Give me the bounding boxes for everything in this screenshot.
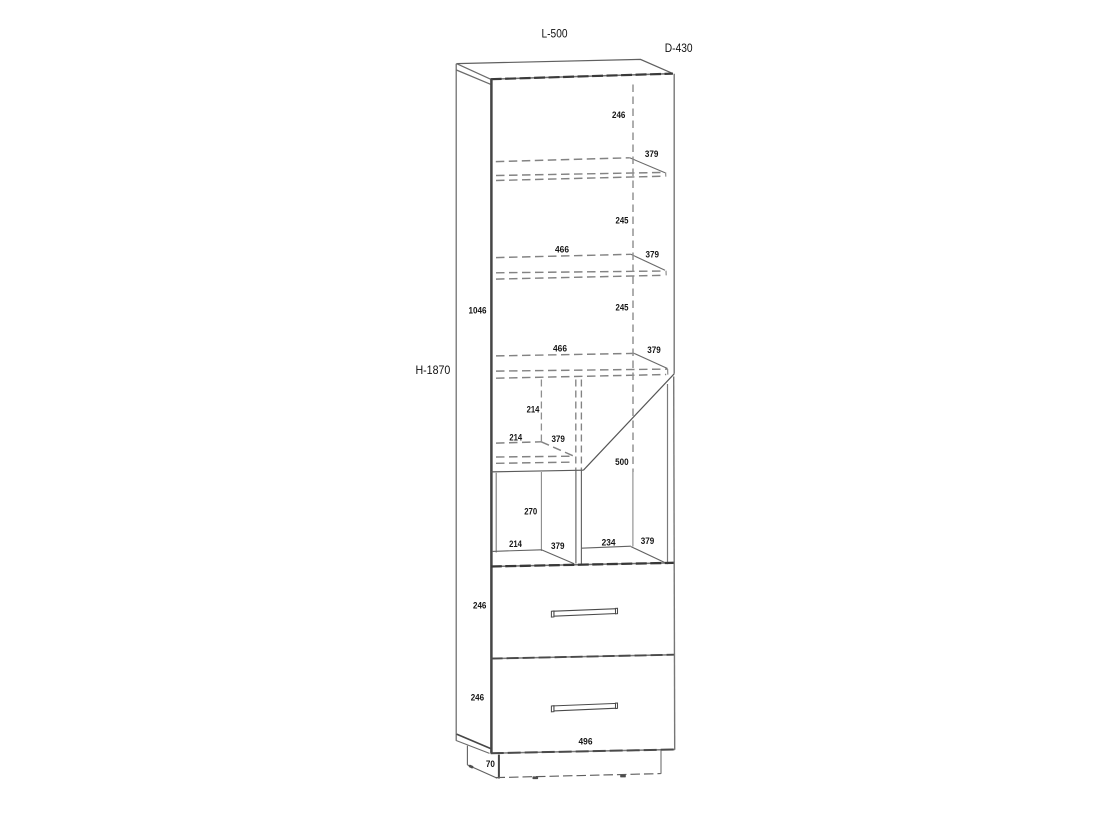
svg-text:379: 379 xyxy=(551,434,565,445)
svg-text:245: 245 xyxy=(616,302,630,313)
svg-text:466: 466 xyxy=(555,244,569,255)
svg-text:70: 70 xyxy=(486,759,495,770)
svg-text:234: 234 xyxy=(602,538,616,549)
svg-text:246: 246 xyxy=(612,110,625,121)
svg-text:214: 214 xyxy=(527,405,540,416)
svg-text:214: 214 xyxy=(509,539,522,550)
svg-text:1046: 1046 xyxy=(469,306,487,317)
svg-text:H-1870: H-1870 xyxy=(415,364,450,377)
svg-text:496: 496 xyxy=(579,737,593,748)
svg-text:379: 379 xyxy=(551,541,565,552)
svg-text:379: 379 xyxy=(641,536,655,547)
svg-text:214: 214 xyxy=(509,433,522,444)
svg-text:379: 379 xyxy=(646,250,660,261)
svg-text:379: 379 xyxy=(645,149,659,160)
svg-text:246: 246 xyxy=(471,693,484,704)
svg-text:466: 466 xyxy=(553,343,567,354)
svg-text:270: 270 xyxy=(524,507,537,518)
svg-text:D-430: D-430 xyxy=(665,42,693,55)
svg-text:245: 245 xyxy=(616,215,630,226)
svg-text:379: 379 xyxy=(647,345,661,356)
svg-text:500: 500 xyxy=(615,457,629,468)
svg-text:L-500: L-500 xyxy=(542,27,568,40)
svg-text:246: 246 xyxy=(473,601,486,612)
